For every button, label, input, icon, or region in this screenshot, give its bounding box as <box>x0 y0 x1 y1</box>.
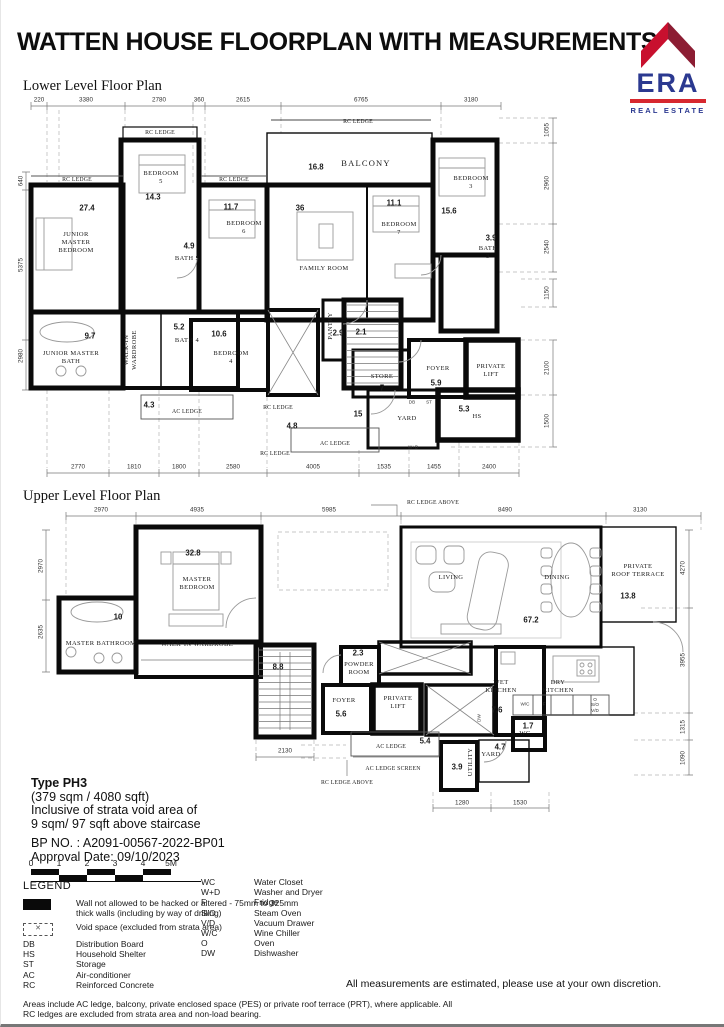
legend-abbrev-desc: Water Closet <box>254 877 303 887</box>
legend-abbrev-desc: Household Shelter <box>76 949 146 959</box>
legend-abbrev-desc: Wine Chiller <box>254 928 300 938</box>
legend-item: WCWater Closet <box>201 877 401 887</box>
upper-ledges <box>351 695 609 756</box>
legend-abbrev-desc: Steam Oven <box>254 908 301 918</box>
lower-furniture <box>36 155 485 414</box>
legend-abbrev-desc: Washer and Dryer <box>254 887 323 897</box>
legend-abbrev-key: W+D <box>201 887 254 897</box>
legend-note: Areas include AC ledge, balcony, private… <box>23 999 453 1019</box>
legend-abbrev-key: S/O <box>201 908 254 918</box>
legend-item: STStorage <box>23 959 463 969</box>
lower-void-cross <box>268 310 318 395</box>
legend-abbrev-desc: Air-conditioner <box>76 970 131 980</box>
legend-abbrev-desc: Reinforced Concrete <box>76 980 154 990</box>
legend-abbrev-key: RC <box>23 980 76 990</box>
legend-abbrev-desc: Storage <box>76 959 106 969</box>
legend-item: W/CWine Chiller <box>201 928 401 938</box>
legend-abbrev-key: ST <box>23 959 76 969</box>
wall-swatch <box>23 899 51 910</box>
legend-item: V/DVacuum Drawer <box>201 918 401 928</box>
legend-abbrev-key: F <box>201 897 254 907</box>
legend-abbrev-desc: Dishwasher <box>254 948 298 958</box>
legend-item: DWDishwasher <box>201 948 401 958</box>
scale-tick-labels: 012345M <box>31 858 201 868</box>
legend-abbrev-key: WC <box>201 877 254 887</box>
scale-tick: 3 <box>113 858 118 868</box>
legend-abbrev-desc: Vacuum Drawer <box>254 918 314 928</box>
legend-abbrev-key: O <box>201 938 254 948</box>
lower-walls <box>31 120 518 448</box>
legend-abbrev-key: DW <box>201 948 254 958</box>
scale-tick: 4 <box>141 858 146 868</box>
unit-size: (379 sqm / 4080 sqft) <box>31 791 225 805</box>
legend: LEGEND Wall not allowed to be hacked or … <box>23 880 463 1019</box>
unit-void-line2: 9 sqm/ 97 sqft above staircase <box>31 818 225 832</box>
scale-tick: 2 <box>85 858 90 868</box>
legend-abbrev-right: WCWater ClosetW+DWasher and DryerFFridge… <box>201 877 401 959</box>
lower-stairs-treads <box>347 305 399 383</box>
upper-void-cross <box>379 642 494 735</box>
legend-item: W+DWasher and Dryer <box>201 887 401 897</box>
legend-abbrev-key: AC <box>23 970 76 980</box>
scale-tick: 0 <box>29 858 34 868</box>
legend-item: S/OSteam Oven <box>201 908 401 918</box>
legend-abbrev-key: V/D <box>201 918 254 928</box>
legend-abbrev-desc: Fridge <box>254 897 278 907</box>
legend-abbrev-key: W/C <box>201 928 254 938</box>
unit-info-block: Type PH3 (379 sqm / 4080 sqft) Inclusive… <box>31 777 225 864</box>
upper-walls <box>59 527 676 790</box>
void-swatch: ✕ <box>23 923 53 936</box>
floorplan-page: WATTEN HOUSE FLOORPLAN WITH MEASUREMENTS… <box>0 0 724 1027</box>
scale-tick: 5M <box>165 858 177 868</box>
unit-void-line1: Inclusive of strata void area of <box>31 804 225 818</box>
legend-abbrev-key: DB <box>23 939 76 949</box>
legend-abbrev-desc: Oven <box>254 938 274 948</box>
legend-abbrev-desc: Distribution Board <box>76 939 144 949</box>
scale-tick: 1 <box>57 858 62 868</box>
bp-number: BP NO. : A2091-00567-2022-BP01 <box>31 837 225 851</box>
legend-item: FFridge <box>201 897 401 907</box>
upper-stairs-treads <box>259 650 311 730</box>
disclaimer-text: All measurements are estimated, please u… <box>346 978 691 990</box>
unit-type: Type PH3 <box>31 777 225 791</box>
legend-abbrev-key: HS <box>23 949 76 959</box>
legend-item: OOven <box>201 938 401 948</box>
